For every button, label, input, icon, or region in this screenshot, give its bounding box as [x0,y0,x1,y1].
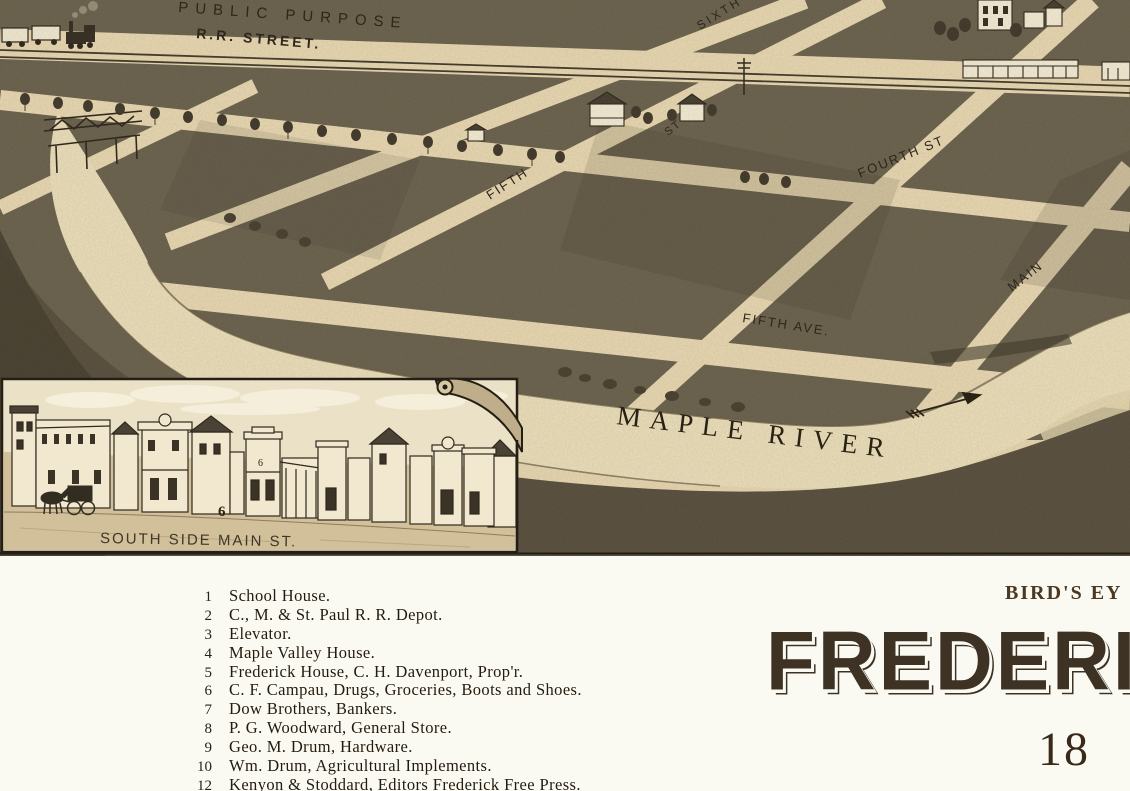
legend-item-text: Dow Brothers, Bankers. [229,699,397,719]
inset-number-street: 6 [218,504,226,520]
legend-item: 6C. F. Campau, Drugs, Groceries, Boots a… [188,680,582,699]
legend-item: 9Geo. M. Drum, Hardware. [188,737,582,756]
legend-item: 4Maple Valley House. [188,643,582,662]
legend-list: 1School House. 2C., M. & St. Paul R. R. … [188,586,582,791]
legend-item-text: C. F. Campau, Drugs, Groceries, Boots an… [229,680,582,700]
legend-item-number: 5 [188,665,212,682]
legend-item-number: 9 [188,740,212,757]
legend-item: 1School House. [188,586,582,605]
legend-item-number: 4 [188,646,212,663]
birdseye-map: PUBLIC PURPOSE R.R. STREET. SIXTH ST FIF… [0,0,1130,556]
legend-item: 2C., M. & St. Paul R. R. Depot. [188,605,582,624]
legend-item: 10Wm. Drum, Agricultural Implements. [188,756,582,775]
legend-item-text: Elevator. [229,624,292,644]
legend-item-text: Wm. Drum, Agricultural Implements. [229,756,492,776]
legend-item: 8P. G. Woodward, General Store. [188,718,582,737]
legend-item-number: 10 [188,759,212,776]
legend-item: 5Frederick House, C. H. Davenport, Prop'… [188,662,582,681]
legend-item-text: Maple Valley House. [229,643,375,663]
title-kicker: BIRD'S EY [1005,582,1122,605]
legend-item-number: 8 [188,721,212,738]
legend-item-text: P. G. Woodward, General Store. [229,718,452,738]
legend-item-text: C., M. & St. Paul R. R. Depot. [229,605,443,625]
lithograph-page: PUBLIC PURPOSE R.R. STREET. SIXTH ST FIF… [0,0,1130,791]
legend-item-number: 2 [188,608,212,625]
inset-caption: SOUTH SIDE MAIN ST. [100,530,297,550]
legend-item-number: 3 [188,627,212,644]
legend-item: 12Kenyon & Stoddard, Editors Frederick F… [188,775,582,791]
inset-number-facade: 6 [258,458,263,469]
title-year: 18 [1038,722,1090,777]
legend-item-number: 6 [188,683,212,700]
title-main: FREDERIC [766,620,1130,703]
legend-item-number: 1 [188,589,212,606]
legend-item-text: Geo. M. Drum, Hardware. [229,737,413,757]
legend-item-number: 7 [188,702,212,719]
legend-item-text: Kenyon & Stoddard, Editors Frederick Fre… [229,775,581,791]
legend-item-text: Frederick House, C. H. Davenport, Prop'r… [229,662,523,682]
legend-item: 7Dow Brothers, Bankers. [188,699,582,718]
legend-item-text: School House. [229,586,330,606]
inset-south-side-main-st: 6 6 SOUTH SIDE MAIN ST. [2,379,522,552]
legend-item-number: 12 [188,778,212,791]
legend-item: 3Elevator. [188,624,582,643]
